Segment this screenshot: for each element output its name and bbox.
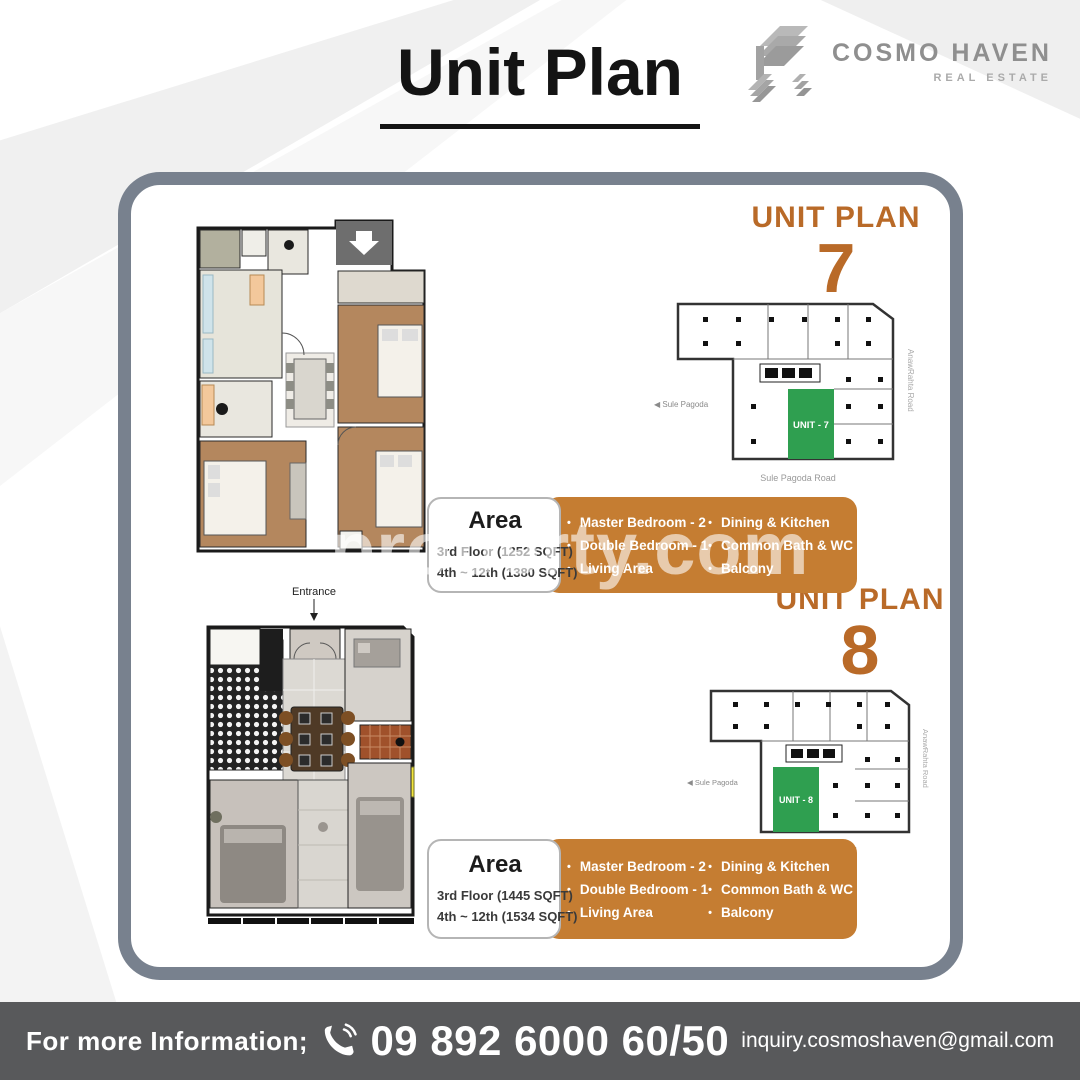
feature-item: Dining & Kitchen — [708, 515, 853, 530]
sule-pagoda-road-label: Sule Pagoda Road — [760, 473, 836, 483]
floor-line-2: 4th ~ 12th (1534 SQFT) — [437, 909, 553, 924]
anawrahta-road-label: AnawRahta Road — [921, 729, 930, 788]
features-col-2: Dining & Kitchen Common Bath & WC Balcon… — [708, 851, 853, 928]
unit-7-area-left: Area 3rd Floor (1252 SQFT) 4th ~ 12th (1… — [427, 497, 561, 593]
feature-item: Common Bath & WC — [708, 882, 853, 897]
brand-name: COSMO HAVEN — [832, 39, 1052, 68]
features-col-1: Master Bedroom - 2 Double Bedroom - 1 Li… — [567, 507, 708, 584]
entrance-arrow-icon — [310, 613, 318, 621]
sule-pagoda-label: ◀ Sule Pagoda — [687, 778, 739, 787]
footer-info-label: For more Information; — [26, 1026, 308, 1057]
feature-item: Living Area — [567, 905, 708, 920]
unit-7-floorplan — [188, 213, 432, 558]
brand-text: COSMO HAVEN REAL ESTATE — [832, 39, 1052, 84]
unit-7-site-label: UNIT - 7 — [793, 420, 829, 431]
features-col-2: Dining & Kitchen Common Bath & WC Balcon… — [708, 507, 853, 584]
feature-item: Double Bedroom - 1 — [567, 538, 708, 553]
unit-7-area-box: Area 3rd Floor (1252 SQFT) 4th ~ 12th (1… — [427, 497, 823, 593]
entrance-label: Entrance — [292, 586, 336, 598]
unit-8-heading: UNIT PLAN 8 — [755, 583, 965, 684]
unit-8-area-left: Area 3rd Floor (1445 SQFT) 4th ~ 12th (1… — [427, 839, 561, 939]
feature-item: Double Bedroom - 1 — [567, 882, 708, 897]
feature-item: Common Bath & WC — [708, 538, 853, 553]
header: Unit Plan — [300, 34, 780, 129]
page-title: Unit Plan — [300, 34, 780, 110]
floor-line-1: 3rd Floor (1445 SQFT) — [437, 888, 553, 903]
area-title: Area — [437, 851, 553, 879]
title-underline — [380, 124, 700, 129]
unit-8-number: 8 — [755, 617, 965, 684]
floor-line-2: 4th ~ 12th (1380 SQFT) — [437, 565, 553, 580]
footer-bar: For more Information; 09 892 6000 60/50 … — [0, 1002, 1080, 1080]
floor-line-1: 3rd Floor (1252 SQFT) — [437, 544, 553, 559]
brand-logo: COSMO HAVEN REAL ESTATE — [746, 20, 1052, 102]
unit-8-floorplan: Entrance — [198, 585, 426, 930]
unit-7-heading: UNIT PLAN 7 — [731, 201, 941, 302]
sule-pagoda-label: ◀ Sule Pagoda — [654, 400, 709, 409]
unit-8-area-box: Area 3rd Floor (1445 SQFT) 4th ~ 12th (1… — [427, 839, 823, 939]
feature-item: Living Area — [567, 561, 708, 576]
feature-item: Dining & Kitchen — [708, 859, 853, 874]
anawrahta-road-label: AnawRahta Road — [906, 349, 915, 412]
footer-email: inquiry.cosmoshaven@gmail.com — [741, 1029, 1054, 1053]
feature-item: Master Bedroom - 2 — [567, 515, 708, 530]
unit-plan-card: UNIT PLAN 7 UNIT - 7 ◀ — [118, 172, 963, 980]
footer-phone-number: 09 892 6000 60/50 — [370, 1017, 729, 1065]
feature-item: Balcony — [708, 905, 853, 920]
area-title: Area — [437, 507, 553, 535]
building-logo-icon — [746, 20, 818, 102]
unit-8-site-label: UNIT - 8 — [779, 795, 813, 805]
unit-7-siteplan: UNIT - 7 ◀ Sule Pagoda Sule Pagoda Road … — [643, 289, 923, 494]
brand-tagline: REAL ESTATE — [933, 72, 1052, 84]
feature-item: Balcony — [708, 561, 853, 576]
flyer-page: Unit Plan COSMO HAVEN REAL ESTATE — [0, 0, 1080, 1080]
features-col-1: Master Bedroom - 2 Double Bedroom - 1 Li… — [567, 851, 708, 928]
unit-8-features: Master Bedroom - 2 Double Bedroom - 1 Li… — [545, 839, 857, 939]
unit-7-features: Master Bedroom - 2 Double Bedroom - 1 Li… — [545, 497, 857, 593]
feature-item: Master Bedroom - 2 — [567, 859, 708, 874]
phone-icon — [320, 1021, 358, 1061]
